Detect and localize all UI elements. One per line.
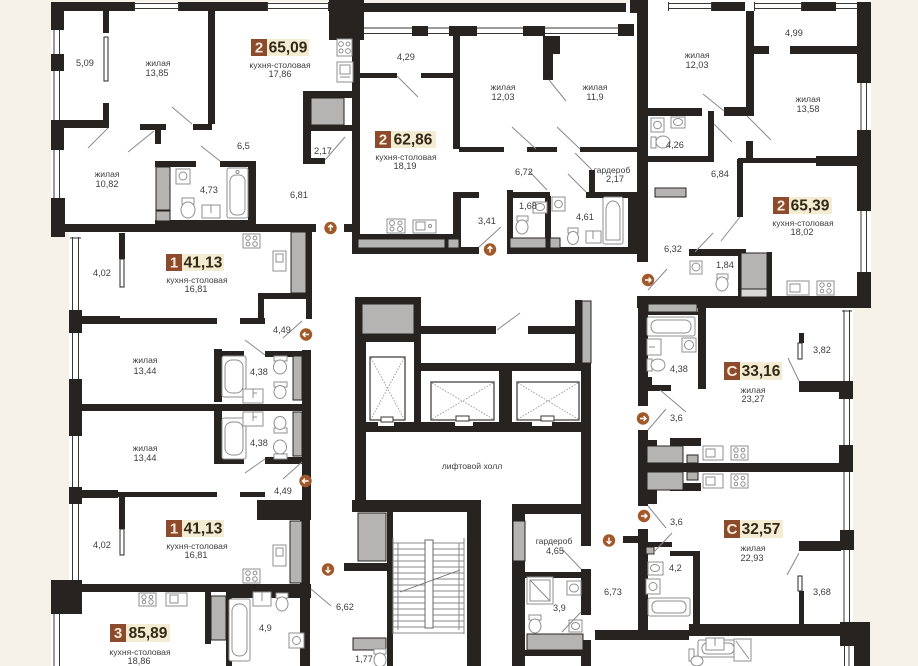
svg-text:18,19: 18,19 (394, 161, 417, 171)
svg-text:4,49: 4,49 (273, 325, 291, 335)
svg-text:1,77: 1,77 (355, 654, 373, 664)
svg-text:6,62: 6,62 (336, 602, 354, 612)
svg-text:6,81: 6,81 (290, 190, 308, 200)
svg-text:2: 2 (379, 132, 387, 149)
svg-text:4,38: 4,38 (250, 438, 268, 448)
svg-text:гардероб: гардероб (536, 536, 573, 546)
svg-text:41,13: 41,13 (184, 255, 223, 272)
svg-text:1: 1 (170, 255, 178, 272)
svg-text:4,65: 4,65 (546, 546, 564, 556)
svg-text:1: 1 (170, 521, 178, 538)
svg-text:жилая: жилая (741, 543, 766, 553)
svg-text:жилая: жилая (146, 58, 171, 68)
svg-text:13,58: 13,58 (797, 104, 820, 114)
svg-text:лифтовой холл: лифтовой холл (442, 461, 503, 471)
svg-text:3: 3 (114, 625, 122, 642)
svg-text:5,09: 5,09 (76, 58, 94, 68)
svg-text:С: С (727, 363, 738, 380)
svg-text:12,03: 12,03 (492, 92, 515, 102)
svg-text:2,17: 2,17 (606, 174, 624, 184)
svg-text:4,02: 4,02 (93, 268, 111, 278)
svg-text:65,09: 65,09 (269, 40, 308, 57)
svg-text:6,5: 6,5 (237, 141, 250, 151)
svg-text:жилая: жилая (133, 355, 158, 365)
svg-text:4,26: 4,26 (666, 140, 684, 150)
svg-text:жилая: жилая (95, 169, 120, 179)
svg-text:12,03: 12,03 (686, 60, 709, 70)
svg-text:4,2: 4,2 (669, 563, 682, 573)
svg-text:1,84: 1,84 (716, 260, 734, 270)
svg-text:3,6: 3,6 (670, 413, 683, 423)
svg-text:23,27: 23,27 (742, 394, 765, 404)
svg-text:жилая: жилая (796, 94, 821, 104)
svg-text:2: 2 (255, 40, 263, 57)
svg-text:13,44: 13,44 (134, 453, 157, 463)
svg-text:жилая: жилая (133, 443, 158, 453)
svg-text:3,82: 3,82 (813, 345, 831, 355)
svg-text:С: С (727, 521, 738, 538)
svg-text:4,73: 4,73 (200, 185, 218, 195)
svg-text:6,73: 6,73 (604, 587, 622, 597)
svg-text:4,38: 4,38 (250, 367, 268, 377)
svg-text:2,17: 2,17 (314, 146, 332, 156)
svg-text:3,9: 3,9 (553, 603, 566, 613)
svg-text:10,82: 10,82 (96, 179, 119, 189)
svg-text:62,86: 62,86 (394, 132, 433, 149)
svg-text:6,72: 6,72 (515, 167, 533, 177)
svg-text:4,49: 4,49 (274, 486, 292, 496)
svg-text:4,02: 4,02 (93, 540, 111, 550)
svg-text:13,85: 13,85 (146, 68, 169, 78)
svg-text:4,29: 4,29 (397, 52, 415, 62)
svg-text:4,9: 4,9 (259, 623, 272, 633)
svg-text:18,86: 18,86 (128, 656, 151, 666)
svg-text:22,93: 22,93 (741, 553, 764, 563)
svg-text:6,32: 6,32 (664, 244, 682, 254)
svg-text:85,89: 85,89 (129, 625, 168, 642)
svg-text:жилая: жилая (685, 50, 710, 60)
svg-text:16,81: 16,81 (185, 284, 208, 294)
svg-text:11,9: 11,9 (586, 92, 603, 102)
svg-text:32,57: 32,57 (742, 521, 781, 538)
svg-text:16,81: 16,81 (185, 550, 208, 560)
svg-text:17,86: 17,86 (269, 69, 292, 79)
svg-text:жилая: жилая (491, 82, 516, 92)
svg-text:13,44: 13,44 (134, 366, 157, 376)
svg-text:18,02: 18,02 (791, 227, 814, 237)
svg-text:4,99: 4,99 (785, 28, 803, 38)
svg-text:3,41: 3,41 (478, 216, 496, 226)
svg-text:4,38: 4,38 (670, 364, 688, 374)
svg-text:3,68: 3,68 (813, 587, 831, 597)
svg-text:4,61: 4,61 (576, 212, 594, 222)
svg-text:жилая: жилая (583, 82, 608, 92)
svg-text:3,6: 3,6 (670, 517, 683, 527)
svg-text:41,13: 41,13 (184, 521, 223, 538)
svg-text:1,68: 1,68 (519, 201, 537, 211)
svg-text:6,84: 6,84 (711, 169, 729, 179)
svg-text:65,39: 65,39 (791, 198, 830, 215)
svg-text:33,16: 33,16 (742, 363, 781, 380)
svg-text:2: 2 (777, 198, 785, 215)
